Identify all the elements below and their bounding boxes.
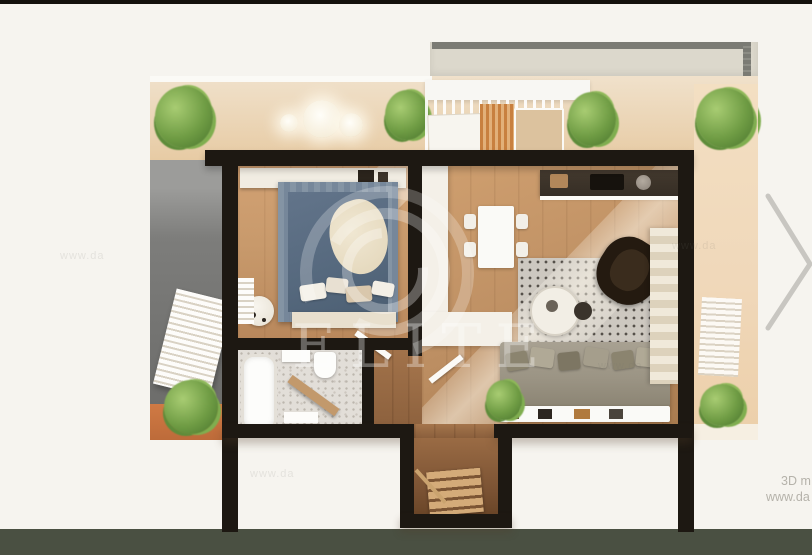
kitchen-sink <box>636 175 651 190</box>
terrace-plant-icon <box>700 384 744 426</box>
tiled-watermark: www.da <box>672 240 717 252</box>
wall-bottom-left <box>222 424 412 438</box>
dining-table <box>478 206 514 268</box>
entry-vestibule <box>414 438 498 514</box>
terrace-edge-bottom <box>694 424 758 440</box>
terrace-folding-chair <box>698 297 742 377</box>
footer-website: www.da <box>766 490 810 504</box>
next-arrow-icon[interactable] <box>756 188 812 336</box>
dining-chair <box>464 214 476 229</box>
cutting-board <box>550 174 568 188</box>
terrace-plant-icon <box>696 88 754 148</box>
living-plant-icon <box>486 380 522 420</box>
pouf-dot <box>262 318 266 322</box>
terrace-edge-highlight <box>150 76 432 82</box>
wall-vestibule-left <box>400 424 414 528</box>
side-table <box>574 302 592 320</box>
deck-slat-mat <box>480 104 514 156</box>
terrace-light-ball <box>280 114 298 132</box>
watermark-text: ELITE <box>292 312 553 382</box>
sofa-bookshelf <box>500 406 670 422</box>
bottom-letterbox-band <box>0 529 812 555</box>
wall-vestibule-bottom <box>400 514 512 528</box>
tiled-watermark: www.da <box>60 250 105 262</box>
wall-right <box>678 150 694 532</box>
tiled-watermark: www.da <box>250 468 295 480</box>
entry-vestibule <box>414 424 498 438</box>
cooktop <box>590 174 624 190</box>
floor-plan-render: ELITE www.da www.da www.da www.da 3D m w… <box>0 0 812 555</box>
facade-plant-icon <box>164 380 218 434</box>
counter-edge <box>540 196 678 200</box>
armchair-cushion <box>603 243 656 298</box>
terrace-light-ball <box>339 113 363 137</box>
terrace-light-ball <box>303 100 341 138</box>
roof-railing-top <box>432 42 750 49</box>
wall-vestibule-right <box>498 424 512 528</box>
bath-mat <box>284 412 318 423</box>
top-letterbox-bar <box>0 0 812 4</box>
terrace-plant-icon <box>568 92 616 146</box>
ladder-decor <box>238 278 254 324</box>
shelf-decor <box>378 172 388 182</box>
dining-chair <box>516 242 528 257</box>
terrace-plant-icon <box>385 90 429 140</box>
tiled-watermark: www.da <box>598 360 643 372</box>
book-spines <box>538 409 552 419</box>
sofa-pillow <box>557 351 581 371</box>
book-spines <box>609 409 623 419</box>
bathtub <box>241 354 277 430</box>
footer-caption: 3D m <box>781 474 811 488</box>
coffee-table-decor <box>546 300 558 312</box>
wall-top <box>205 150 693 166</box>
terrace-plant-icon <box>155 86 213 148</box>
pergola-frame <box>425 80 590 100</box>
book-spines <box>574 409 590 419</box>
dining-chair <box>516 214 528 229</box>
wall-bottom-right <box>494 424 692 438</box>
